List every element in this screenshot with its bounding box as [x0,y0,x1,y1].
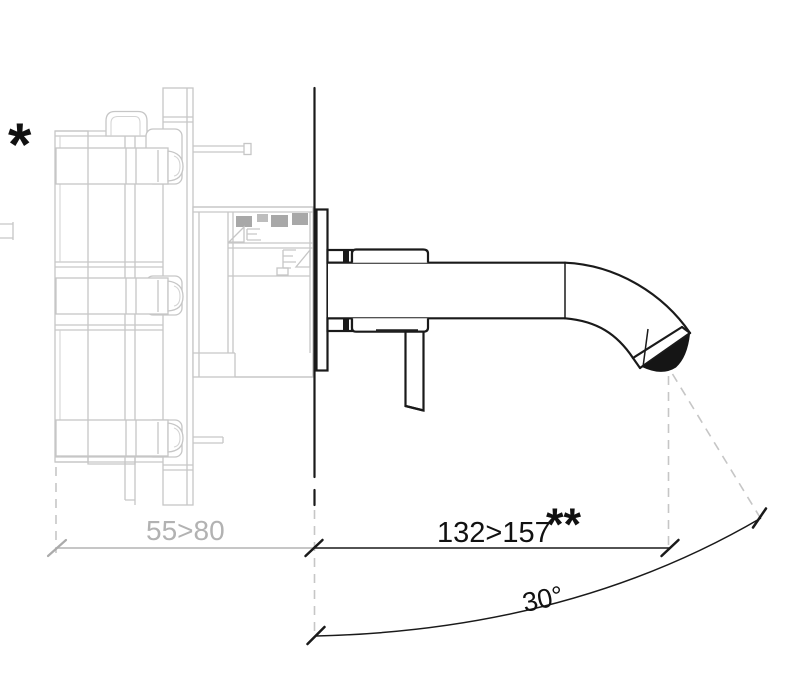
angle-arc-tick-right [753,509,766,528]
angle-label: 30° [520,580,566,618]
faucet-installation-diagram: 55>80 [0,0,800,693]
depth-dimension-label: 55>80 [146,515,225,546]
top-pin [193,146,244,152]
reach-dimension-label: 132>157 [437,517,551,549]
supply-stub-lines [0,222,13,240]
bottom-pin [193,437,223,443]
in-wall-valve-body [0,88,313,505]
lever-handle [406,332,424,411]
top-pin-cap [244,144,251,155]
collar-seal-top [343,250,349,263]
escutcheon-plate [317,210,328,371]
cartridge-housing [193,207,313,377]
note-asterisk: * [8,111,32,178]
wall-mounted-mixer [317,210,691,411]
stream-direction-dashed-line [673,374,762,519]
port-middle [56,276,183,315]
reach-dimension-note-stars: ** [546,499,582,550]
collar-seal-bottom [343,318,349,331]
technical-drawing-canvas: 55>80 [0,0,800,693]
reach-dimension: 132>157 ** [306,499,679,556]
spout [328,263,690,372]
top-dome-cap [106,112,147,137]
